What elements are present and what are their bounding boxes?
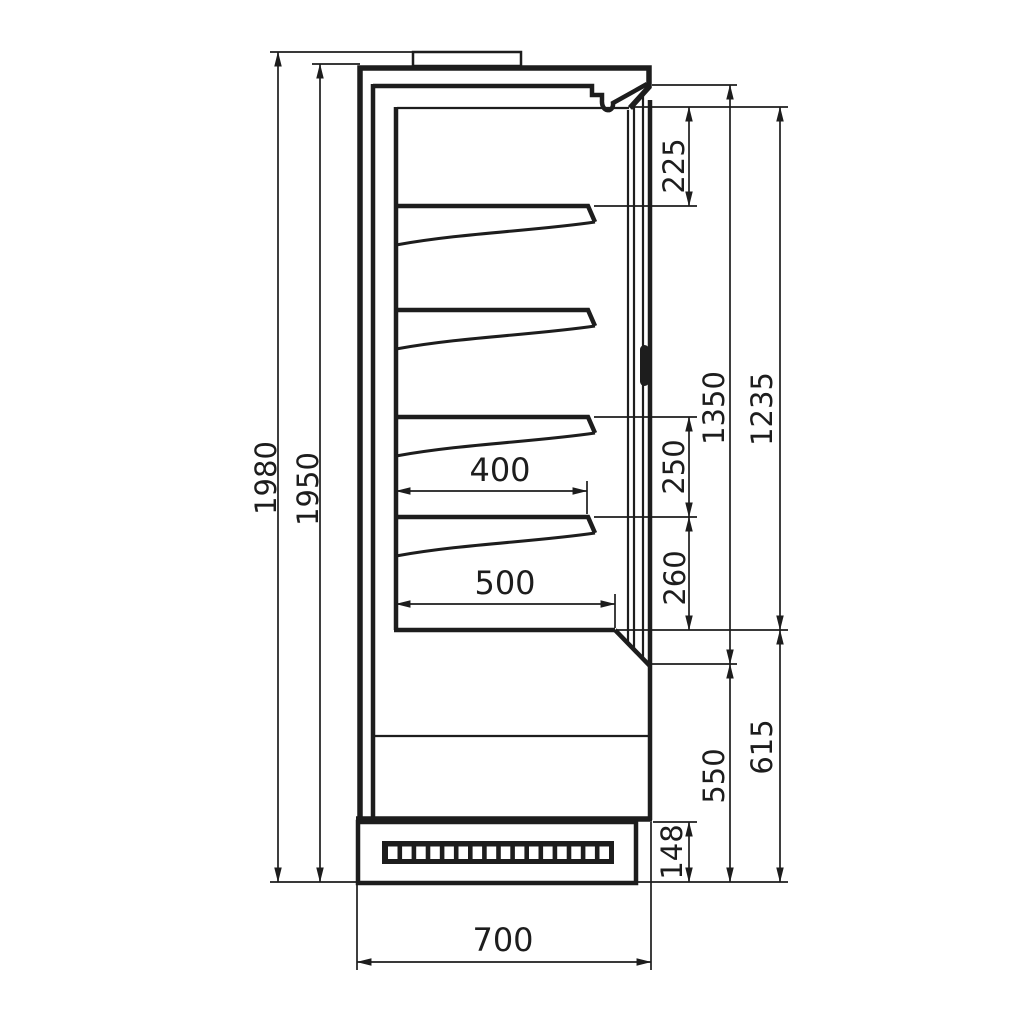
- grille-slot: [529, 847, 539, 860]
- dim-label-interior-height: 1235: [745, 372, 779, 446]
- dim-bottom-shelf-depth: 500: [396, 564, 615, 604]
- grille-slot: [543, 847, 553, 860]
- technical-drawing: 1980 1950 225 1350 1235 250 260 615: [0, 0, 1024, 1024]
- dim-label-body-height: 1950: [291, 452, 325, 526]
- dim-label-shelf-depth: 400: [469, 451, 530, 489]
- grille-slot: [473, 847, 483, 860]
- grille-slot: [487, 847, 497, 860]
- air-duct-ceiling: [373, 84, 647, 110]
- dim-label-bottom-shelf-depth: 500: [474, 564, 535, 602]
- shelf-1: [396, 206, 595, 245]
- dim-label-lower-front-height: 550: [697, 748, 731, 803]
- dim-shelf-depth: 400: [396, 451, 587, 491]
- grille-slot: [585, 847, 595, 860]
- dim-label-overall-depth: 700: [472, 921, 533, 959]
- grille-slot: [600, 847, 610, 860]
- dim-interior-height: 1235: [745, 107, 780, 630]
- dim-overall-depth: 700: [357, 921, 651, 962]
- grille-slot: [571, 847, 581, 860]
- dim-shelf-spacing-lower: 260: [658, 517, 692, 630]
- front-glass-door: [628, 96, 650, 820]
- dim-overall-height: 1980: [249, 52, 283, 882]
- dim-label-top-duct-zone: 225: [657, 138, 691, 193]
- dim-label-shelf-spacing-lower: 260: [658, 550, 692, 605]
- grille-slot: [501, 847, 511, 860]
- grille-slot: [416, 847, 426, 860]
- dim-top-duct-zone: 225: [657, 107, 691, 206]
- dim-body-height: 1950: [291, 64, 325, 882]
- dim-label-base-zone-height: 615: [745, 719, 779, 774]
- door-handle: [640, 345, 649, 386]
- dim-label-opening-height: 1350: [697, 371, 731, 445]
- grille-slot: [515, 847, 525, 860]
- dim-lower-front-height: 550: [697, 664, 731, 882]
- front-bottom-diagonal: [615, 630, 650, 666]
- grille-slot: [459, 847, 469, 860]
- grille-slot: [557, 847, 567, 860]
- dim-plinth-height: 148: [655, 822, 689, 882]
- grille-slot: [402, 847, 412, 860]
- dim-opening-height: 1350: [697, 85, 731, 664]
- grille-slot: [444, 847, 454, 860]
- shelf-2: [396, 310, 595, 349]
- grille-slot: [388, 847, 398, 860]
- dim-label-overall-height: 1980: [249, 441, 283, 515]
- dim-label-plinth-height: 148: [655, 824, 689, 879]
- dim-shelf-spacing-upper: 250: [657, 417, 691, 517]
- shelf-4: [396, 517, 595, 556]
- dim-base-zone-height: 615: [745, 630, 780, 882]
- grille-slot: [430, 847, 440, 860]
- dim-label-shelf-spacing-upper: 250: [657, 439, 691, 494]
- top-cap: [413, 52, 521, 66]
